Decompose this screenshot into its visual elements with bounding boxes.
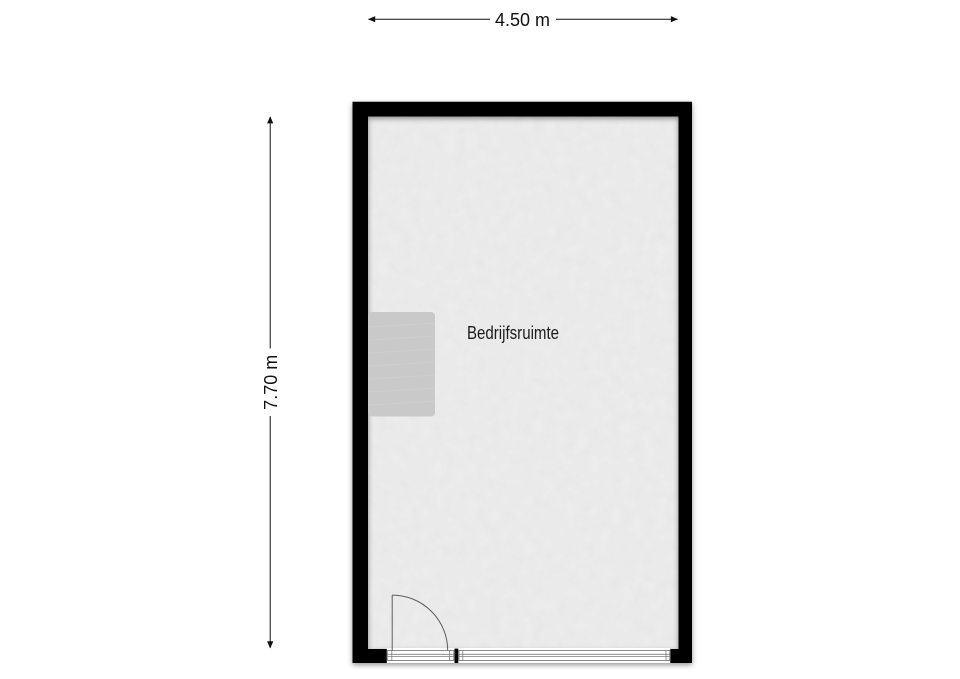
svg-text:4.50 m: 4.50 m — [495, 10, 550, 30]
svg-text:Bedrijfsruimte: Bedrijfsruimte — [467, 323, 559, 343]
svg-text:7.70 m: 7.70 m — [261, 355, 281, 410]
